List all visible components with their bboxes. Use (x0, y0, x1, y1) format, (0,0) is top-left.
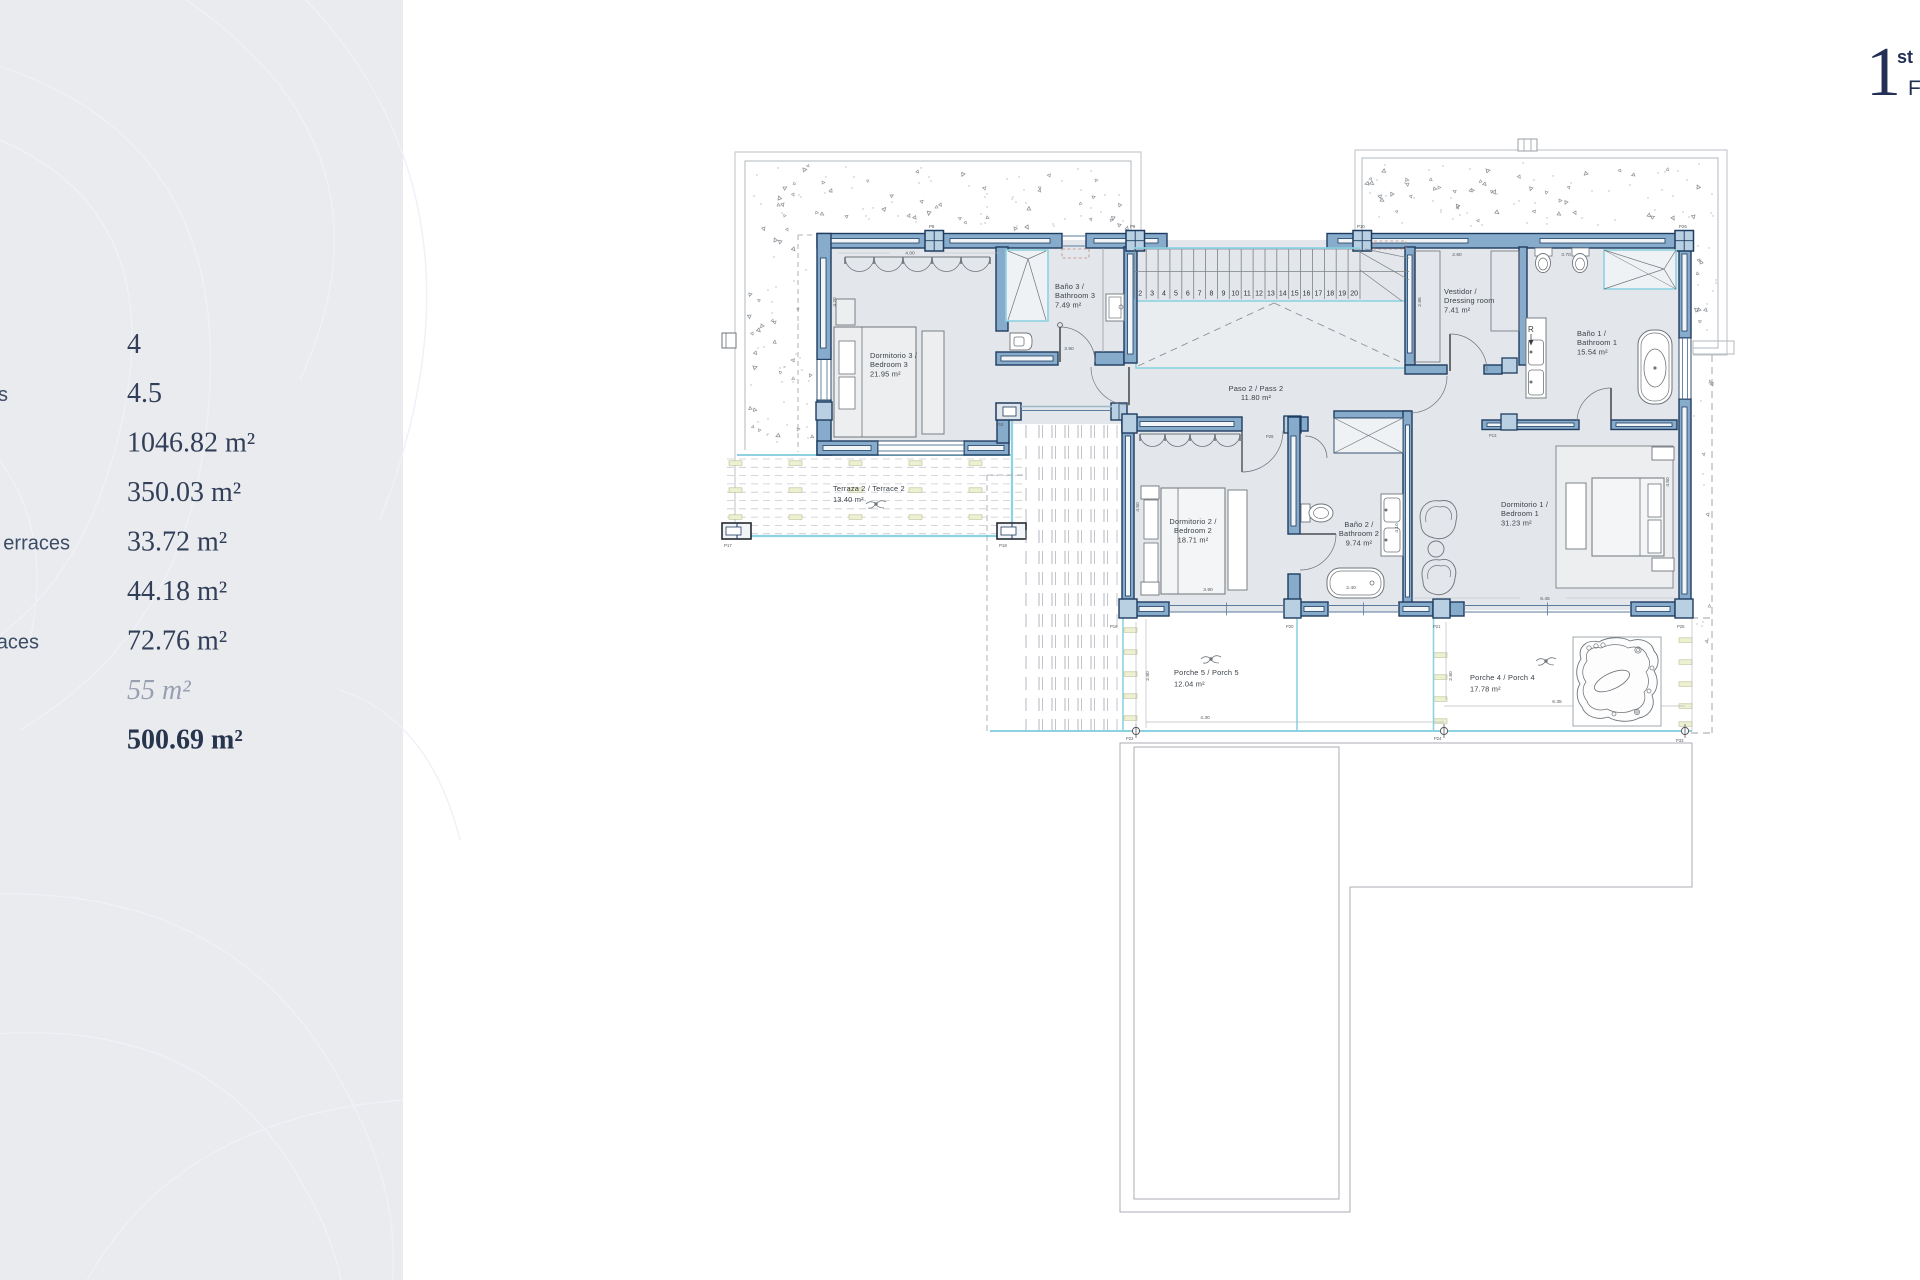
svg-text:Baño 1 /: Baño 1 / (1577, 329, 1607, 338)
svg-text:5: 5 (1174, 291, 1178, 298)
svg-text:3.70: 3.70 (1561, 252, 1571, 258)
svg-text:erraces: erraces (3, 533, 70, 555)
svg-text:aces: aces (0, 632, 39, 654)
svg-text:4.30: 4.30 (1200, 715, 1210, 721)
svg-text:6.45: 6.45 (1540, 596, 1550, 602)
svg-text:9.74 m²: 9.74 m² (1346, 538, 1373, 547)
svg-text:20: 20 (1350, 291, 1358, 298)
svg-text:72.76 m²: 72.76 m² (127, 626, 227, 657)
svg-text:Dormitorio 1 /: Dormitorio 1 / (1501, 500, 1549, 509)
svg-text:P24: P24 (1434, 736, 1442, 741)
svg-text:55 m²: 55 m² (127, 675, 191, 706)
svg-text:P8: P8 (929, 224, 935, 229)
svg-text:7.41 m²: 7.41 m² (1444, 305, 1471, 314)
svg-text:Fl: Fl (1908, 77, 1920, 100)
svg-text:P13: P13 (1489, 433, 1497, 438)
svg-text:P25: P25 (1677, 624, 1685, 629)
svg-text:14: 14 (1279, 291, 1287, 298)
svg-text:4.5: 4.5 (127, 378, 162, 409)
svg-text:10: 10 (1231, 291, 1239, 298)
svg-text:1046.82 m²: 1046.82 m² (127, 428, 255, 459)
svg-text:4.20: 4.20 (832, 297, 838, 307)
svg-text:Dormitorio 2 /: Dormitorio 2 / (1169, 517, 1217, 526)
svg-text:P20: P20 (1286, 624, 1294, 629)
svg-text:R: R (1528, 325, 1534, 334)
svg-text:13: 13 (1267, 291, 1275, 298)
svg-text:2.85: 2.85 (1417, 297, 1423, 307)
svg-text:6.35: 6.35 (1552, 699, 1562, 705)
svg-text:Dormitorio 3 /: Dormitorio 3 / (870, 351, 918, 360)
svg-text:2.80: 2.80 (1448, 671, 1454, 681)
svg-text:16: 16 (1303, 291, 1311, 298)
svg-text:4: 4 (1162, 291, 1166, 298)
svg-text:3.90: 3.90 (1064, 346, 1074, 352)
svg-text:Baño 2 /: Baño 2 / (1344, 520, 1374, 529)
svg-text:P21: P21 (1433, 624, 1441, 629)
svg-text:P10: P10 (1357, 224, 1365, 229)
svg-text:44.18 m²: 44.18 m² (127, 576, 227, 607)
svg-text:19: 19 (1338, 291, 1346, 298)
svg-text:2.80: 2.80 (1145, 671, 1151, 681)
svg-text:11.80 m²: 11.80 m² (1241, 393, 1272, 402)
svg-text:2.60: 2.60 (1452, 252, 1462, 258)
svg-text:Bedroom 3: Bedroom 3 (870, 360, 908, 369)
svg-text:4.10: 4.10 (1394, 523, 1400, 533)
svg-text:P26: P26 (1679, 224, 1687, 229)
svg-text:P18: P18 (999, 543, 1007, 548)
svg-text:21.95 m²: 21.95 m² (870, 369, 901, 378)
svg-text:4.50: 4.50 (1665, 477, 1671, 487)
svg-text:4.00: 4.00 (905, 251, 915, 257)
svg-text:17.78 m²: 17.78 m² (1470, 685, 1501, 694)
svg-text:3: 3 (1150, 291, 1154, 298)
svg-text:Bathroom 3: Bathroom 3 (1055, 291, 1095, 300)
svg-text:Baño 3 /: Baño 3 / (1055, 282, 1085, 291)
svg-text:Bedroom 2: Bedroom 2 (1174, 526, 1212, 535)
svg-text:P33: P33 (1676, 738, 1684, 743)
svg-text:P15: P15 (996, 422, 1004, 427)
svg-text:Porche 5 / Porch 5: Porche 5 / Porch 5 (1174, 668, 1239, 677)
svg-text:18.71 m²: 18.71 m² (1178, 535, 1209, 544)
svg-text:11: 11 (1244, 291, 1251, 298)
svg-text:2: 2 (1138, 291, 1142, 298)
svg-text:1: 1 (1866, 34, 1901, 111)
svg-text:12.04 m²: 12.04 m² (1174, 680, 1205, 689)
svg-text:4.50: 4.50 (1135, 502, 1141, 512)
svg-text:9: 9 (1221, 291, 1225, 298)
svg-text:33.72 m²: 33.72 m² (127, 527, 227, 558)
svg-text:Bathroom 2: Bathroom 2 (1339, 529, 1379, 538)
svg-text:P17: P17 (724, 543, 732, 548)
svg-text:P9: P9 (1130, 224, 1136, 229)
svg-text:7.49 m²: 7.49 m² (1055, 300, 1082, 309)
svg-text:Porche 4 / Porch 4: Porche 4 / Porch 4 (1470, 673, 1535, 682)
svg-text:P22: P22 (1126, 736, 1134, 741)
svg-text:st: st (1897, 47, 1913, 67)
svg-text:15: 15 (1291, 291, 1299, 298)
svg-text:Terraza 2 / Terrace 2: Terraza 2 / Terrace 2 (833, 484, 905, 493)
svg-text:350.03 m²: 350.03 m² (127, 477, 241, 508)
svg-text:4: 4 (127, 329, 141, 360)
svg-text:31.23 m²: 31.23 m² (1501, 518, 1532, 527)
svg-text:Paso 2 / Pass 2: Paso 2 / Pass 2 (1229, 384, 1284, 393)
svg-text:8: 8 (1210, 291, 1214, 298)
svg-text:6: 6 (1186, 291, 1190, 298)
svg-text:3.90: 3.90 (1203, 587, 1213, 593)
svg-text:Vestidor /: Vestidor / (1444, 287, 1478, 296)
svg-text:7: 7 (1198, 291, 1202, 298)
svg-text:Dressing room: Dressing room (1444, 296, 1495, 305)
svg-text:P19: P19 (1110, 624, 1118, 629)
svg-text:18: 18 (1326, 291, 1334, 298)
svg-text:Bathroom 1: Bathroom 1 (1577, 338, 1617, 347)
svg-text:2.40: 2.40 (1346, 585, 1356, 591)
svg-text:15.54 m²: 15.54 m² (1577, 347, 1608, 356)
svg-text:13.40 m²: 13.40 m² (833, 495, 864, 504)
svg-text:Bedroom 1: Bedroom 1 (1501, 509, 1539, 518)
svg-text:500.69 m²: 500.69 m² (127, 725, 243, 756)
svg-text:s: s (0, 384, 8, 406)
svg-text:12: 12 (1255, 291, 1263, 298)
svg-text:17: 17 (1315, 291, 1323, 298)
svg-text:P28: P28 (1266, 434, 1274, 439)
